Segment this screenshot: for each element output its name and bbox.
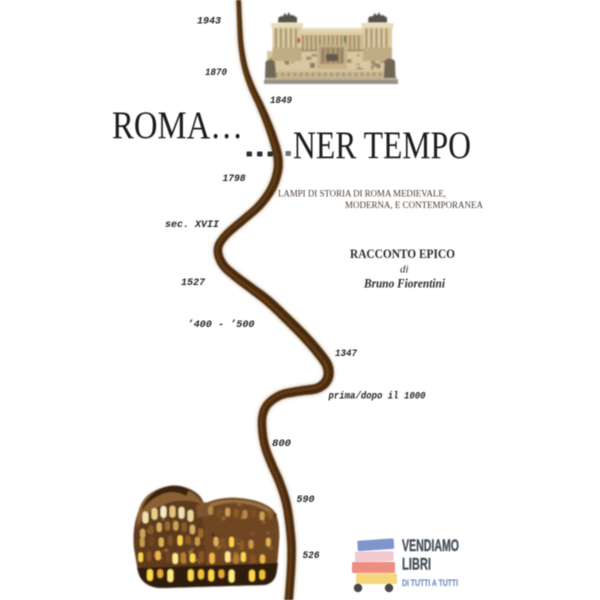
svg-text:590: 590 (297, 494, 315, 506)
svg-text:MODERNA, E CONTEMPORANEA: MODERNA, E CONTEMPORANEA (345, 201, 483, 211)
svg-text:1527: 1527 (181, 277, 206, 289)
svg-text:Bruno Fiorentini: Bruno Fiorentini (363, 277, 445, 291)
svg-text:LIBRI: LIBRI (402, 555, 431, 574)
svg-text:1849: 1849 (270, 95, 292, 107)
svg-text:LAMPI DI STORIA DI ROMA MEDIEV: LAMPI DI STORIA DI ROMA MEDIEVALE, (278, 190, 446, 200)
svg-text:1870: 1870 (205, 67, 227, 79)
svg-text:di: di (400, 264, 409, 276)
svg-text:ROMA…: ROMA… (112, 104, 243, 147)
svg-text:sec. XVII: sec. XVII (165, 219, 220, 231)
svg-text:1347: 1347 (335, 348, 358, 360)
svg-text:1798: 1798 (223, 173, 247, 185)
svg-text:1943: 1943 (197, 16, 222, 28)
svg-text:DI TUTTI A TUTTI: DI TUTTI A TUTTI (402, 578, 458, 589)
svg-text:VENDIAMO: VENDIAMO (402, 536, 459, 555)
svg-text:526: 526 (303, 550, 321, 562)
svg-text:’400 - ’500: ’400 - ’500 (188, 319, 255, 331)
svg-text:prima/dopo il 1000: prima/dopo il 1000 (328, 391, 426, 403)
svg-text:800: 800 (272, 438, 291, 450)
svg-text:RACCONTO EPICO: RACCONTO EPICO (350, 246, 455, 261)
svg-text:NER TEMPO: NER TEMPO (293, 124, 471, 167)
